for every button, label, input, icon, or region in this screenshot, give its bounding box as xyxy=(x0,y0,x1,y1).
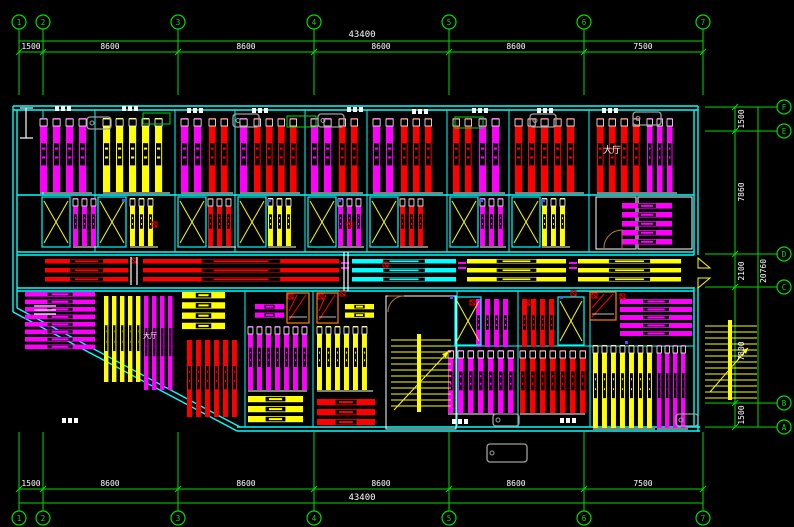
striped-unit-gap xyxy=(493,143,498,165)
striped-unit-code xyxy=(482,223,483,225)
striped-unit-gap xyxy=(561,371,565,390)
hbar-label xyxy=(641,241,653,243)
striped-unit-code xyxy=(81,148,84,150)
striped-unit-cap xyxy=(657,346,661,353)
striped-unit-code xyxy=(105,156,108,158)
micro-label xyxy=(359,107,363,112)
striped-unit-gap xyxy=(129,325,131,351)
dim-text: 8600 xyxy=(100,479,119,488)
striped-unit-code xyxy=(649,148,651,150)
striped-unit-code xyxy=(622,378,623,380)
striped-unit-code xyxy=(649,378,650,380)
striped-unit-gap xyxy=(276,348,279,367)
striped-unit-cap xyxy=(673,346,677,353)
hbar-label xyxy=(647,324,664,326)
axis-bubble-label: D xyxy=(782,250,787,259)
striped-unit-gap xyxy=(639,373,642,398)
striped-unit-gap xyxy=(131,214,134,228)
striped-unit-cap xyxy=(275,327,280,334)
micro-label xyxy=(537,108,541,113)
striped-unit-cap xyxy=(248,327,253,334)
striped-unit-code xyxy=(420,223,421,225)
striped-unit-code xyxy=(268,352,269,354)
striped-unit-gap xyxy=(532,315,535,329)
striped-unit-cap xyxy=(638,346,643,353)
dim-text: 8600 xyxy=(506,479,525,488)
striped-unit-code xyxy=(494,156,497,158)
striped-unit-gap xyxy=(666,373,668,398)
striped-unit-code xyxy=(270,223,271,225)
striped-unit-gap xyxy=(143,143,148,165)
striped-unit-gap xyxy=(542,143,547,165)
striped-unit-code xyxy=(319,352,320,354)
micro-label xyxy=(55,106,59,111)
striped-unit-gap xyxy=(621,373,624,398)
striped-unit-gap xyxy=(339,214,342,228)
striped-unit-gap xyxy=(594,373,597,398)
hbar-label xyxy=(52,338,69,340)
striped-unit-gap xyxy=(224,366,227,389)
striped-unit-code xyxy=(118,156,121,158)
striped-unit-code xyxy=(355,352,356,354)
striped-unit-gap xyxy=(195,143,200,165)
striped-unit-gap xyxy=(294,348,297,367)
striped-unit-code xyxy=(470,375,472,377)
axis-bubble-label: F xyxy=(782,103,787,112)
micro-label xyxy=(61,106,65,111)
axis-bubble-label: 3 xyxy=(176,18,181,27)
striped-unit-cap xyxy=(103,119,110,126)
micro-label xyxy=(543,108,547,113)
bathtub-drain xyxy=(490,451,494,455)
stair-rail xyxy=(417,334,421,412)
striped-unit-cap xyxy=(293,327,298,334)
striped-unit-gap xyxy=(523,315,526,329)
dim-text: 8600 xyxy=(506,42,525,51)
striped-unit-gap xyxy=(410,214,413,228)
striped-unit-cap xyxy=(498,199,503,206)
striped-unit-cap xyxy=(194,119,201,126)
striped-unit-code xyxy=(55,156,58,158)
striped-unit-gap xyxy=(312,143,317,165)
striped-unit-code xyxy=(259,352,260,354)
striped-unit-code xyxy=(478,324,479,326)
striped-unit-gap xyxy=(363,348,366,367)
striped-unit-code xyxy=(490,375,492,377)
striped-unit-code xyxy=(640,388,641,390)
striped-unit-gap xyxy=(67,143,72,165)
micro-label xyxy=(353,107,357,112)
striped-unit-code xyxy=(572,383,574,385)
striped-unit-gap xyxy=(469,371,473,390)
valve-marker-x xyxy=(592,293,597,298)
striped-unit-gap xyxy=(227,214,230,228)
striped-unit-code xyxy=(460,383,462,385)
hbar-label xyxy=(266,314,273,316)
striped-unit-cap xyxy=(356,199,361,206)
striped-unit-code xyxy=(478,318,479,320)
striped-unit-code xyxy=(552,375,554,377)
striped-unit-code xyxy=(532,383,534,385)
striped-unit-cap xyxy=(335,327,340,334)
dim-text: 1500 xyxy=(737,405,746,424)
striped-unit-code xyxy=(505,324,506,326)
striped-unit-code xyxy=(582,375,584,377)
striped-unit-code xyxy=(196,156,199,158)
striped-unit-code xyxy=(328,359,329,361)
hbar-label xyxy=(641,232,653,234)
striped-unit-gap xyxy=(414,143,419,165)
striped-unit-code xyxy=(340,217,341,219)
striped-unit-code xyxy=(562,375,564,377)
striped-unit-gap xyxy=(161,328,163,356)
striped-unit-code xyxy=(505,318,506,320)
bathtub-drain xyxy=(90,121,94,125)
striped-unit-gap xyxy=(504,315,507,329)
striped-unit-gap xyxy=(285,348,288,367)
striped-unit-gap xyxy=(490,214,493,228)
striped-unit-gap xyxy=(327,348,330,367)
striped-unit-code xyxy=(487,318,488,320)
bathtub-drain xyxy=(236,119,240,123)
axis-bubble-label: 2 xyxy=(41,514,46,523)
striped-unit-gap xyxy=(182,143,187,165)
striped-unit-gap xyxy=(426,143,431,165)
striped-unit-cap xyxy=(570,351,576,358)
striped-unit-code xyxy=(460,375,462,377)
striped-unit-gap xyxy=(459,371,463,390)
striped-unit-gap xyxy=(325,143,330,165)
dim-text: 8600 xyxy=(236,42,255,51)
striped-unit-code xyxy=(517,148,520,150)
striped-unit-gap xyxy=(479,371,483,390)
striped-unit-code xyxy=(403,148,406,150)
fixture-dot xyxy=(338,199,341,202)
striped-unit-code xyxy=(341,156,344,158)
striped-unit-code xyxy=(268,148,271,150)
striped-unit-code xyxy=(105,148,108,150)
striped-unit-code xyxy=(198,371,199,373)
striped-unit-code xyxy=(375,148,378,150)
corridor-code xyxy=(569,262,577,264)
axis-bubble-label: 2 xyxy=(41,18,46,27)
striped-unit-gap xyxy=(267,348,270,367)
striped-unit-gap xyxy=(209,214,212,228)
striped-unit-code xyxy=(219,223,220,225)
striped-unit-code xyxy=(613,388,614,390)
striped-unit-code xyxy=(132,223,133,225)
striped-unit-cap xyxy=(667,119,673,126)
striped-unit-gap xyxy=(279,143,284,165)
corridor-bar-label xyxy=(75,269,98,271)
dim-text: 8600 xyxy=(371,42,390,51)
striped-unit-gap xyxy=(80,143,85,165)
striped-unit-code xyxy=(649,156,651,158)
striped-unit-code xyxy=(500,375,502,377)
striped-unit-cap xyxy=(66,119,73,126)
door-arc xyxy=(604,230,622,248)
striped-unit-gap xyxy=(477,315,480,329)
striped-unit-code xyxy=(68,148,71,150)
micro-label xyxy=(418,109,422,114)
striped-unit-code xyxy=(250,359,251,361)
striped-unit-code xyxy=(242,156,245,158)
striped-unit-gap xyxy=(612,373,615,398)
striped-unit-code xyxy=(68,156,71,158)
fixture-dot xyxy=(122,199,125,202)
striped-unit-code xyxy=(669,156,671,158)
valve-marker-x xyxy=(340,291,345,296)
hbar-label xyxy=(641,223,653,225)
striped-unit-cap xyxy=(580,351,586,358)
striped-unit-code xyxy=(542,375,544,377)
corridor-bar-label xyxy=(214,260,269,262)
striped-unit-gap xyxy=(374,143,379,165)
striped-unit-code xyxy=(524,318,525,320)
striped-unit-cap xyxy=(226,199,231,206)
hbar-label xyxy=(266,306,273,308)
striped-unit-cap xyxy=(82,199,87,206)
striped-unit-code xyxy=(234,371,235,373)
striped-unit-code xyxy=(496,324,497,326)
axis-bubble-label: 5 xyxy=(447,18,452,27)
striped-unit-code xyxy=(93,217,94,219)
striped-unit-code xyxy=(304,359,305,361)
striped-unit-code xyxy=(198,380,199,382)
striped-unit-cap xyxy=(40,119,47,126)
fixture-dot xyxy=(560,296,563,299)
striped-unit-code xyxy=(75,217,76,219)
striped-unit-code xyxy=(480,383,482,385)
striped-unit-gap xyxy=(318,348,321,367)
striped-unit-gap xyxy=(648,373,651,398)
striped-unit-code xyxy=(544,217,545,219)
micro-label xyxy=(549,108,553,113)
striped-unit-cap xyxy=(130,199,135,206)
hbar-label xyxy=(52,346,69,348)
bathtub xyxy=(493,414,519,426)
striped-unit-gap xyxy=(634,143,639,165)
dim-text: 大厅 xyxy=(603,144,621,156)
striped-unit-cap xyxy=(91,199,96,206)
striped-unit-gap xyxy=(345,348,348,367)
hbar-label xyxy=(641,214,653,216)
striped-unit-gap xyxy=(529,143,534,165)
micro-label xyxy=(452,419,456,424)
striped-unit-gap xyxy=(303,348,306,367)
striped-unit-code xyxy=(542,318,543,320)
striped-unit-code xyxy=(131,156,134,158)
striped-unit-gap xyxy=(269,214,272,228)
micro-label xyxy=(68,418,72,423)
striped-unit-gap xyxy=(603,373,606,398)
striped-unit-cap xyxy=(351,119,358,126)
striped-unit-code xyxy=(259,359,260,361)
striped-unit-cap xyxy=(611,346,616,353)
striped-unit-cap xyxy=(386,119,393,126)
micro-label xyxy=(424,109,428,114)
striped-unit-code xyxy=(270,217,271,219)
striped-unit-gap xyxy=(291,143,296,165)
striped-unit-cap xyxy=(409,199,414,206)
striped-unit-gap xyxy=(480,143,485,165)
striped-unit-code xyxy=(157,156,160,158)
striped-unit-code xyxy=(522,383,524,385)
dim-text: 1500 xyxy=(21,42,40,51)
striped-unit-gap xyxy=(489,371,493,390)
striped-unit-gap xyxy=(249,348,252,367)
striped-unit-code xyxy=(649,388,650,390)
striped-unit-code xyxy=(207,371,208,373)
striped-unit-gap xyxy=(156,143,161,165)
striped-unit-code xyxy=(81,156,84,158)
striped-unit-code xyxy=(496,318,497,320)
striped-unit-code xyxy=(42,148,45,150)
hbar-label xyxy=(52,293,69,295)
micro-label xyxy=(62,418,66,423)
hbar-label xyxy=(339,401,353,403)
striped-unit-gap xyxy=(568,143,573,165)
striped-unit-code xyxy=(84,217,85,219)
striped-unit-cap xyxy=(413,119,420,126)
striped-unit-gap xyxy=(241,143,246,165)
striped-unit-code xyxy=(510,375,512,377)
micro-label xyxy=(566,418,570,423)
striped-unit-code xyxy=(183,156,186,158)
striped-unit-gap xyxy=(658,143,662,165)
striped-unit-code xyxy=(326,148,329,150)
valve-marker-x xyxy=(288,294,293,299)
axis-bubble-label: 1 xyxy=(17,18,22,27)
axis-bubble-label: 7 xyxy=(701,18,706,27)
striped-unit-gap xyxy=(658,373,660,398)
striped-unit-code xyxy=(211,148,214,150)
micro-label xyxy=(458,419,462,424)
striped-unit-code xyxy=(131,148,134,150)
striped-unit-gap xyxy=(278,214,281,228)
striped-unit-gap xyxy=(140,214,143,228)
corridor-bar-label xyxy=(615,269,644,271)
striped-unit-cap xyxy=(155,119,162,126)
hbar-label xyxy=(647,332,664,334)
striped-unit-cap xyxy=(489,199,494,206)
striped-unit-gap xyxy=(218,214,221,228)
striped-unit-cap xyxy=(498,351,504,358)
striped-unit-code xyxy=(157,148,160,150)
striped-unit-code xyxy=(225,371,226,373)
striped-unit-code xyxy=(234,380,235,382)
striped-unit-gap xyxy=(481,214,484,228)
hbar-label xyxy=(269,418,282,420)
striped-unit-cap xyxy=(277,199,282,206)
striped-unit-code xyxy=(337,359,338,361)
striped-unit-cap xyxy=(551,199,556,206)
striped-unit-code xyxy=(402,217,403,219)
striped-unit-code xyxy=(659,148,661,150)
hbar-label xyxy=(647,300,664,302)
striped-unit-cap xyxy=(554,119,561,126)
striped-unit-code xyxy=(341,148,344,150)
micro-label xyxy=(472,108,476,113)
striped-unit-cap xyxy=(681,346,685,353)
corridor-code xyxy=(458,262,466,264)
striped-unit-gap xyxy=(210,143,215,165)
striped-unit-code xyxy=(150,223,151,225)
axis-bubble-label: 4 xyxy=(312,18,317,27)
striped-unit-code xyxy=(532,375,534,377)
striped-unit-gap xyxy=(92,214,95,228)
striped-unit-code xyxy=(582,383,584,385)
striped-unit-code xyxy=(93,223,94,225)
striped-unit-code xyxy=(388,156,391,158)
striped-unit-gap xyxy=(516,143,521,165)
micro-label xyxy=(560,418,564,423)
corridor-bar-label xyxy=(615,278,644,280)
micro-label xyxy=(412,109,416,114)
fixture-dot xyxy=(450,296,453,299)
striped-unit-code xyxy=(562,383,564,385)
striped-unit-code xyxy=(533,324,534,326)
striped-unit-code xyxy=(480,375,482,377)
hbar-label xyxy=(198,294,208,296)
striped-unit-cap xyxy=(240,119,247,126)
striped-unit-code xyxy=(599,156,602,158)
striped-unit-code xyxy=(216,371,217,373)
striped-unit-cap xyxy=(208,199,213,206)
striped-unit-gap xyxy=(41,143,46,165)
striped-unit-gap xyxy=(630,373,633,398)
striped-unit-code xyxy=(635,148,638,150)
striped-unit-code xyxy=(482,217,483,219)
hbar-label xyxy=(52,323,69,325)
cad-viewport[interactable]: 4340015008600860086008600750015008600860… xyxy=(0,0,794,527)
corridor-code xyxy=(569,267,577,269)
striped-unit-code xyxy=(599,148,602,150)
striped-unit-cap xyxy=(609,119,616,126)
dim-text: 1500 xyxy=(737,109,746,128)
striped-unit-code xyxy=(328,352,329,354)
hatch-line xyxy=(592,294,613,317)
striped-unit-code xyxy=(279,217,280,219)
corridor-bar-label xyxy=(389,260,418,262)
striped-unit-code xyxy=(467,156,470,158)
striped-unit-code xyxy=(353,156,356,158)
hbar-label xyxy=(52,331,69,333)
striped-unit-code xyxy=(530,156,533,158)
striped-unit-code xyxy=(286,352,287,354)
striped-unit-gap xyxy=(598,143,603,165)
striped-unit-code xyxy=(388,148,391,150)
striped-unit-cap xyxy=(508,351,514,358)
striped-unit-gap xyxy=(258,348,261,367)
striped-unit-code xyxy=(280,148,283,150)
striped-unit-code xyxy=(207,380,208,382)
striped-unit-code xyxy=(42,156,45,158)
striped-unit-code xyxy=(364,352,365,354)
striped-unit-code xyxy=(543,148,546,150)
striped-unit-gap xyxy=(169,328,171,356)
striped-unit-cap xyxy=(465,119,472,126)
striped-unit-gap xyxy=(267,143,272,165)
micro-label xyxy=(252,108,256,113)
striped-unit-cap xyxy=(79,119,86,126)
dim-text: 7860 xyxy=(737,182,746,201)
striped-unit-code xyxy=(510,383,512,385)
striped-unit-code xyxy=(623,156,626,158)
striped-unit-gap xyxy=(215,366,218,389)
striped-unit-gap xyxy=(622,143,627,165)
striped-unit-cap xyxy=(620,346,625,353)
